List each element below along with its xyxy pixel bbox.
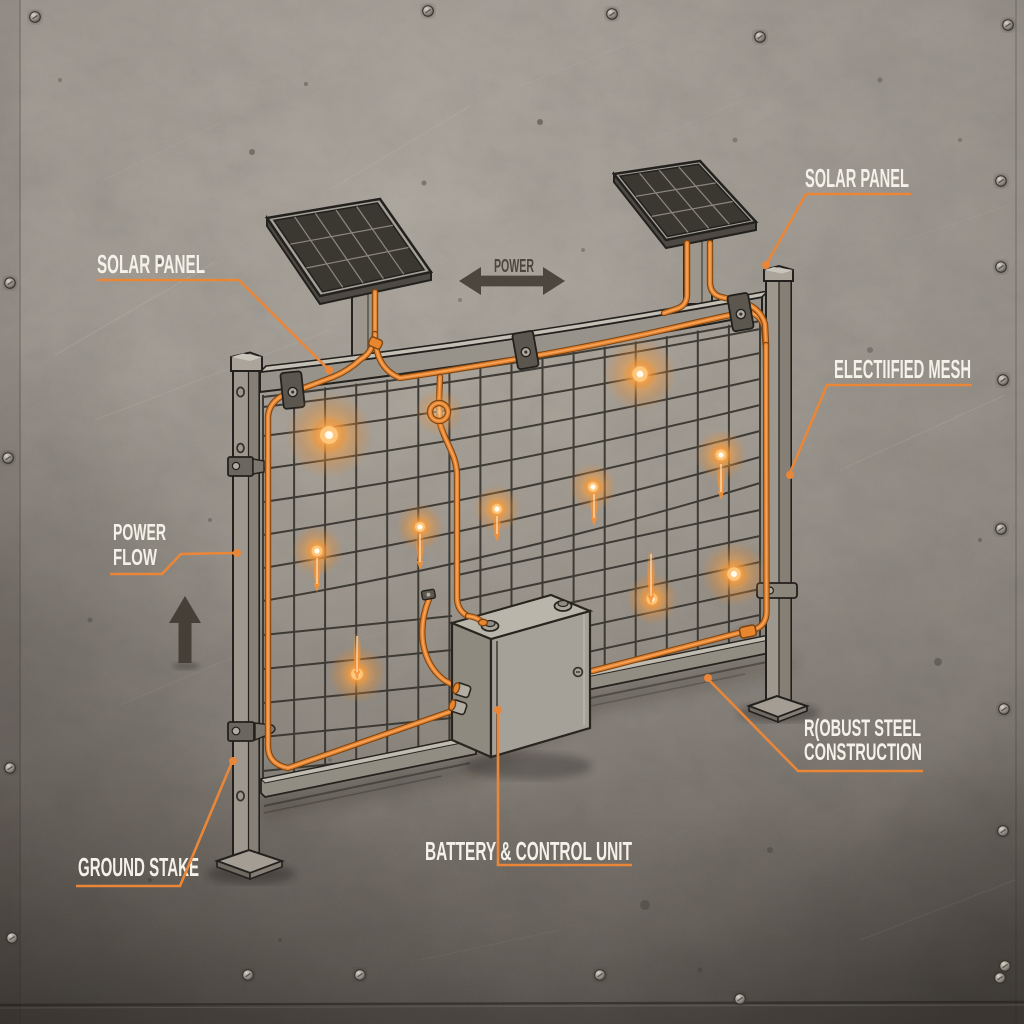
svg-text:SOLAR PANEL: SOLAR PANEL [97, 249, 205, 279]
svg-text:SOLAR PANEL: SOLAR PANEL [805, 163, 909, 193]
svg-text:POWER: POWER [113, 519, 166, 545]
svg-text:CONSTRUCTION: CONSTRUCTION [804, 739, 922, 766]
svg-text:R(OBUST STEEL: R(OBUST STEEL [804, 715, 921, 742]
svg-text:FLOW: FLOW [113, 544, 157, 570]
svg-text:POWER: POWER [494, 255, 534, 276]
svg-text:GROUND STAKE: GROUND STAKE [78, 852, 199, 882]
svg-text:BATTERY & CONTROL UNIT: BATTERY & CONTROL UNIT [425, 838, 632, 866]
svg-text:ELECTIIFIED MESH: ELECTIIFIED MESH [834, 356, 971, 384]
